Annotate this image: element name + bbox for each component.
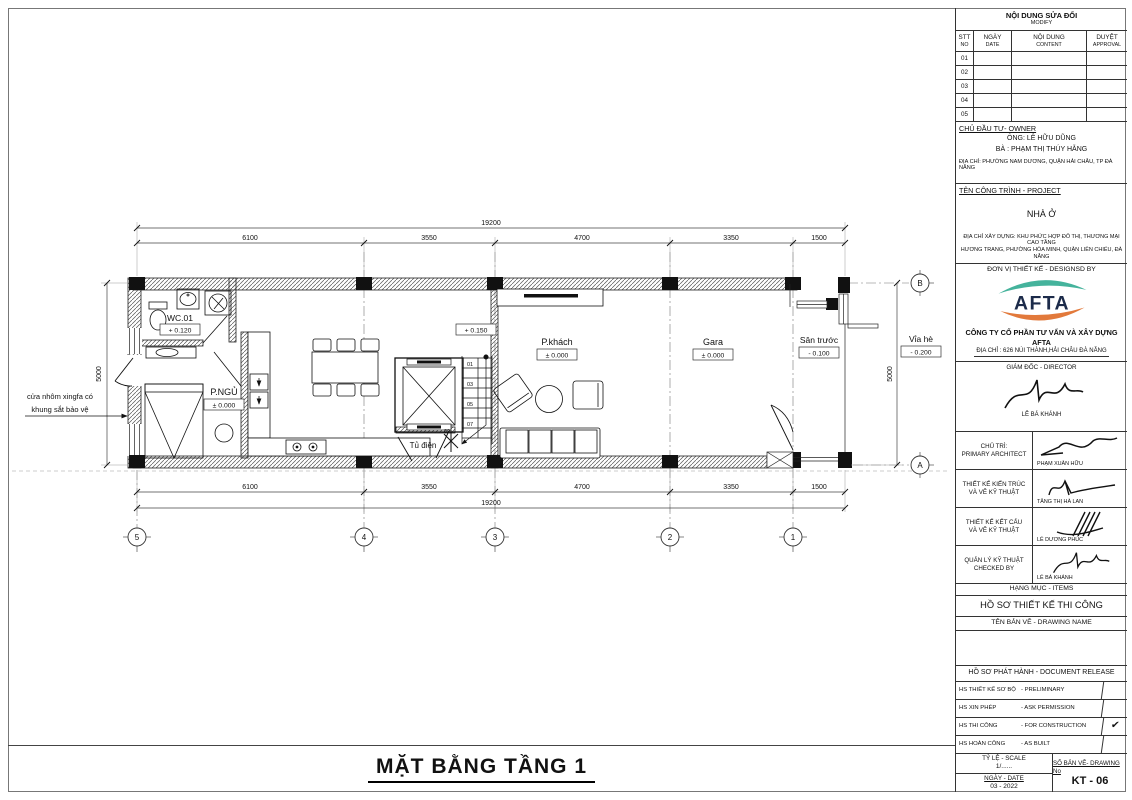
dim-seg-bot-4: 3350 xyxy=(723,484,739,491)
sig-name: LÊ BÁ KHÁNH xyxy=(1037,575,1073,582)
col-noidung: NỘI DUNG xyxy=(1033,34,1065,42)
dim-seg-bot-5: 1500 xyxy=(811,484,827,491)
elevator xyxy=(395,358,463,432)
sig-name: PHẠM XUÂN HỮU xyxy=(1037,461,1083,468)
release-row-construction: HS THI CÔNG - FOR CONSTRUCTION ✔ xyxy=(956,718,1127,736)
date-label: NGÀY - DATE xyxy=(984,775,1024,783)
wc-fixtures xyxy=(146,289,241,386)
room-level-living: ± 0.000 xyxy=(546,353,569,360)
dim-seg-top-4: 3350 xyxy=(723,235,739,242)
title-block: NỘI DUNG SỬA ĐỔI MODIFY STTNO NGÀYDATE N… xyxy=(955,8,1127,792)
room-label-garage: Gara xyxy=(703,337,723,347)
dim-seg-top-1: 6100 xyxy=(242,235,258,242)
afta-logo: AFTA xyxy=(990,276,1094,326)
designer-section: ĐƠN VỊ THIẾT KẾ - DESIGNSD BY AFTA CÔNG … xyxy=(956,264,1127,362)
grid-label-3: 3 xyxy=(493,533,498,542)
release-en: - PRELIMINARY xyxy=(1021,682,1102,699)
project-name: NHÀ Ở xyxy=(959,195,1124,234)
signature xyxy=(1039,547,1121,577)
sig-role1: THIẾT KẾ KIẾN TRÚC xyxy=(963,481,1026,489)
electrical-cabinet-label: Tủ điện xyxy=(410,441,437,450)
room-label-front-yard: Sân trước xyxy=(800,335,839,345)
garage-door xyxy=(771,405,793,450)
col-stt: STT xyxy=(959,34,971,42)
front-yard-fence xyxy=(767,284,878,468)
items-value: HỒ SƠ THIẾT KẾ THI CÔNG xyxy=(956,596,1127,617)
revision-subtitle: MODIFY xyxy=(1031,20,1052,27)
sig-role2: VÀ VẼ KỸ THUẬT xyxy=(969,489,1019,497)
designer-heading: ĐƠN VỊ THIẾT KẾ - DESIGNSD BY xyxy=(987,266,1096,274)
dim-seg-top-2: 3550 xyxy=(421,235,437,242)
release-vn: HS HOÀN CÔNG xyxy=(956,736,1021,753)
room-level-wc: + 0.120 xyxy=(169,328,192,335)
room-level-sidewalk: - 0.200 xyxy=(910,350,931,357)
revision-row: 01 xyxy=(956,52,1127,66)
stair-step-01: 01 xyxy=(467,362,473,368)
col-duyet: DUYỆT xyxy=(1096,34,1117,42)
columns xyxy=(129,277,852,468)
release-checkbox xyxy=(1101,682,1128,699)
stair-step-05: 05 xyxy=(467,402,473,408)
project-address1: ĐỊA CHỈ XÂY DỰNG: KHU PHỨC HỢP ĐÔ THỊ, T… xyxy=(959,234,1124,248)
floor-plan: 19200 6100 3550 4700 3350 1500 6100 3550… xyxy=(0,0,955,745)
dim-seg-top-5: 1500 xyxy=(811,235,827,242)
grid-label-4: 4 xyxy=(362,533,367,542)
director-section: GIÁM ĐỐC - DIRECTOR LÊ BÁ KHÁNH xyxy=(956,362,1127,432)
owner-section: CHỦ ĐẦU TƯ- OWNER ÔNG: LÊ HỮU DŨNG BÀ : … xyxy=(956,122,1127,184)
grid-label-A: A xyxy=(917,461,923,470)
titleblock-footer: TỶ LỆ - SCALE 1/...... NGÀY - DATE 03 - … xyxy=(956,754,1127,792)
release-heading: HỒ SƠ PHÁT HÀNH - DOCUMENT RELEASE xyxy=(956,666,1127,682)
sig-role1: CHỦ TRÌ: xyxy=(981,443,1008,451)
director-role: GIÁM ĐỐC - DIRECTOR xyxy=(1006,364,1076,372)
dim-total-top: 19200 xyxy=(481,220,501,227)
stair-step-09: 09 xyxy=(444,429,450,435)
sig-name: LÊ DƯƠNG PHÚC xyxy=(1037,537,1083,544)
date-value: 03 - 2022 xyxy=(990,783,1017,791)
dim-seg-bot-3: 4700 xyxy=(574,484,590,491)
signature xyxy=(1039,471,1121,501)
signature-row-arch-drafter: THIẾT KẾ KIẾN TRÚC VÀ VẼ KỸ THUẬT TĂNG T… xyxy=(956,470,1127,508)
revision-row: 04 xyxy=(956,94,1127,108)
dim-height-right: 5000 xyxy=(887,366,894,382)
revision-header-row: STTNO NGÀYDATE NỘI DUNGCONTENT DUYỆTAPPR… xyxy=(956,31,1127,52)
sig-name: TĂNG THỊ HÀ LAN xyxy=(1037,499,1083,506)
room-level-garage: ± 0.000 xyxy=(702,353,725,360)
grid-label-B: B xyxy=(917,279,922,288)
room-level-front-yard: - 0.100 xyxy=(808,351,829,358)
sig-role2: PRIMARY ARCHITECT xyxy=(962,451,1027,459)
col-ngay: NGÀY xyxy=(984,34,1002,42)
signature xyxy=(1039,433,1121,463)
release-en: - ASK PERMISSION xyxy=(1021,700,1102,717)
project-address2: HƯƠNG TRANG, PHƯỜNG HÒA MINH, QUẬN LIÊN … xyxy=(959,247,1124,261)
dining-set xyxy=(312,339,379,396)
revision-row: 05 xyxy=(956,108,1127,121)
dim-height-left: 5000 xyxy=(96,366,103,382)
dim-seg-bot-1: 6100 xyxy=(242,484,258,491)
grid-label-5: 5 xyxy=(135,533,140,542)
release-row-permission: HS XIN PHÉP - ASK PERMISSION xyxy=(956,700,1127,718)
owner-line2: BÀ : PHẠM THỊ THÚY HẰNG xyxy=(959,146,1124,155)
grid-label-1: 1 xyxy=(791,533,796,542)
owner-heading: CHỦ ĐẦU TƯ- OWNER xyxy=(959,124,1124,133)
room-label-sidewalk: Vỉa hè xyxy=(909,334,933,344)
signature xyxy=(1039,509,1121,539)
revision-row: 02 xyxy=(956,66,1127,80)
scale-value: 1/...... xyxy=(996,763,1012,771)
revision-row: 03 xyxy=(956,80,1127,94)
sig-role1: QUẢN LÝ KỸ THUẬT xyxy=(964,557,1023,565)
room-label-bedroom: P.NGỦ xyxy=(210,386,237,397)
project-heading: TÊN CÔNG TRÌNH - PROJECT xyxy=(959,186,1124,195)
dim-seg-bot-2: 3550 xyxy=(421,484,437,491)
dim-seg-top-3: 4700 xyxy=(574,235,590,242)
items-heading: HẠNG MỤC - ITEMS xyxy=(956,584,1127,596)
owner-line1: ÔNG: LÊ HỮU DŨNG xyxy=(959,135,1124,144)
designer-address: ĐỊA CHỈ : 626 NÚI THÀNH,HẢI CHÂU ĐÀ NẴNG xyxy=(974,348,1108,358)
sig-role1: THIẾT KẾ KẾT CẤU xyxy=(966,519,1022,527)
door-note-line1: cửa nhôm xingfa có xyxy=(27,392,93,401)
room-level-bedroom: ± 0.000 xyxy=(213,403,236,410)
release-row-preliminary: HS THIẾT KẾ SƠ BỘ - PRELIMINARY xyxy=(956,682,1127,700)
logo-text: AFTA xyxy=(1014,293,1070,315)
living-furniture xyxy=(493,289,603,458)
release-en: - FOR CONSTRUCTION xyxy=(1021,718,1102,735)
director-signature xyxy=(997,372,1087,414)
signature-row-structure: THIẾT KẾ KẾT CẤU VÀ VẼ KỸ THUẬT LÊ DƯƠNG… xyxy=(956,508,1127,546)
stair-step-03: 03 xyxy=(467,382,473,388)
release-vn: HS THI CÔNG xyxy=(956,718,1021,735)
designer-company: CÔNG TY CỔ PHẦN TƯ VẤN VÀ XÂY DỰNG AFTA xyxy=(958,328,1125,346)
drawing-name-heading: TÊN BẢN VẼ - DRAWING NAME xyxy=(956,617,1127,631)
owner-address: ĐỊA CHỈ: PHƯỜNG NAM DƯƠNG, QUẬN HẢI CHÂU… xyxy=(959,159,1124,173)
drawing-name-value xyxy=(956,631,1127,666)
drawing-title: MẶT BẰNG TẦNG 1 xyxy=(368,755,595,783)
release-checkbox xyxy=(1101,700,1128,717)
drawing-sheet: 19200 6100 3550 4700 3350 1500 6100 3550… xyxy=(0,0,1132,800)
room-label-living: P.khách xyxy=(541,337,572,347)
sig-role2: CHECKED BY xyxy=(974,565,1014,573)
drawing-no-value: KT - 06 xyxy=(1072,772,1109,793)
sig-role2: VÀ VẼ KỸ THUẬT xyxy=(969,527,1019,535)
signature-row-architect: CHỦ TRÌ: PRIMARY ARCHITECT PHẠM XUÂN HỮU xyxy=(956,432,1127,470)
release-checkmark: ✔ xyxy=(1101,718,1128,735)
revision-title: NỘI DUNG SỬA ĐỔI xyxy=(1006,11,1077,20)
door-note-line2: khung sắt bảo vệ xyxy=(31,405,88,414)
signature-row-checker: QUẢN LÝ KỸ THUẬT CHECKED BY LÊ BÁ KHÁNH xyxy=(956,546,1127,584)
dim-total-bottom: 19200 xyxy=(481,500,501,507)
release-checkbox xyxy=(1101,736,1128,753)
release-vn: HS THIẾT KẾ SƠ BỘ xyxy=(956,682,1021,699)
revision-table: NỘI DUNG SỬA ĐỔI MODIFY STTNO NGÀYDATE N… xyxy=(956,8,1127,122)
level-landing: + 0.150 xyxy=(465,328,488,335)
dimensions xyxy=(101,222,903,512)
grid-label-2: 2 xyxy=(668,533,673,542)
director-name: LÊ BÁ KHÁNH xyxy=(1022,412,1062,420)
stair-step-07: 07 xyxy=(467,422,473,428)
drawing-title-bar: MẶT BẰNG TẦNG 1 xyxy=(8,745,955,792)
room-label-wc: WC.01 xyxy=(167,313,193,323)
release-vn: HS XIN PHÉP xyxy=(956,700,1021,717)
project-section: TÊN CÔNG TRÌNH - PROJECT NHÀ Ở ĐỊA CHỈ X… xyxy=(956,184,1127,264)
scale-label: TỶ LỆ - SCALE xyxy=(982,755,1026,763)
release-en: - AS BUILT xyxy=(1021,736,1102,753)
release-row-asbuilt: HS HOÀN CÔNG - AS BUILT xyxy=(956,736,1127,754)
